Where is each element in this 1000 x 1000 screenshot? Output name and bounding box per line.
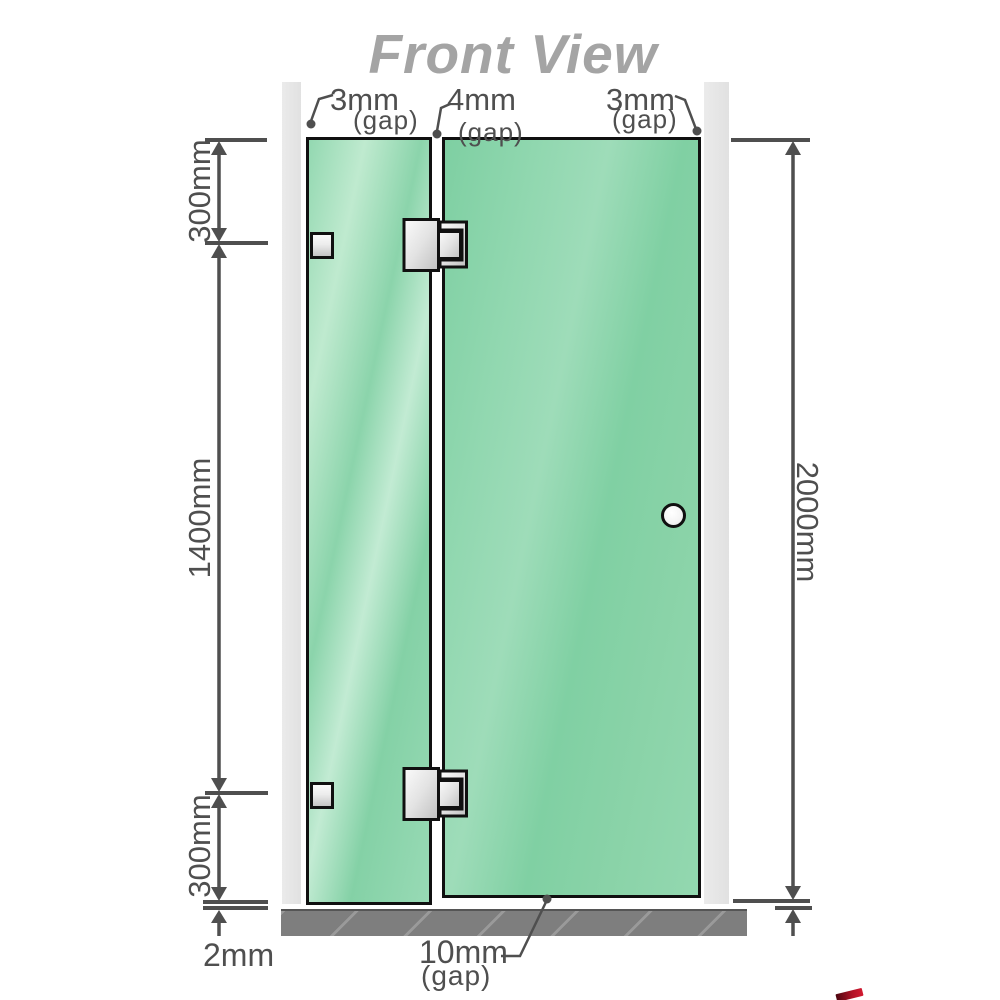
dim-label-upper-left: 300mm [182,106,218,276]
left-wall [282,82,301,904]
hinge-tab [439,781,461,808]
floor-base [281,909,747,936]
hinge-tab [439,232,461,259]
gap-label-top-middle-suffix: (gap) [458,117,524,148]
right-wall [704,82,729,904]
dim-label-right-height: 2000mm [789,437,825,607]
dim-label-floor-gap: 2mm [203,937,274,974]
glass-hinge-top [402,216,468,274]
watermark-fragment [835,988,863,1000]
door-knob [661,503,686,528]
dim-label-lower-left: 300mm [182,761,218,931]
glass-hinge-bottom [402,765,468,823]
hinge-panel-plate [404,220,439,271]
dim-label-middle-left: 1400mm [182,433,218,603]
gap-label-bottom-suffix: (gap) [421,960,491,992]
gap-label-top-left-suffix: (gap) [353,105,419,136]
wall-bracket-bottom [310,782,334,809]
hinge-panel-plate [404,769,439,820]
diagram-title: Front View [26,22,1000,86]
gap-label-top-right-suffix: (gap) [612,104,678,135]
gap-label-top-middle-value: 4mm [447,82,516,118]
wall-bracket-top [310,232,334,259]
front-view-diagram: Front View [0,0,1000,1000]
